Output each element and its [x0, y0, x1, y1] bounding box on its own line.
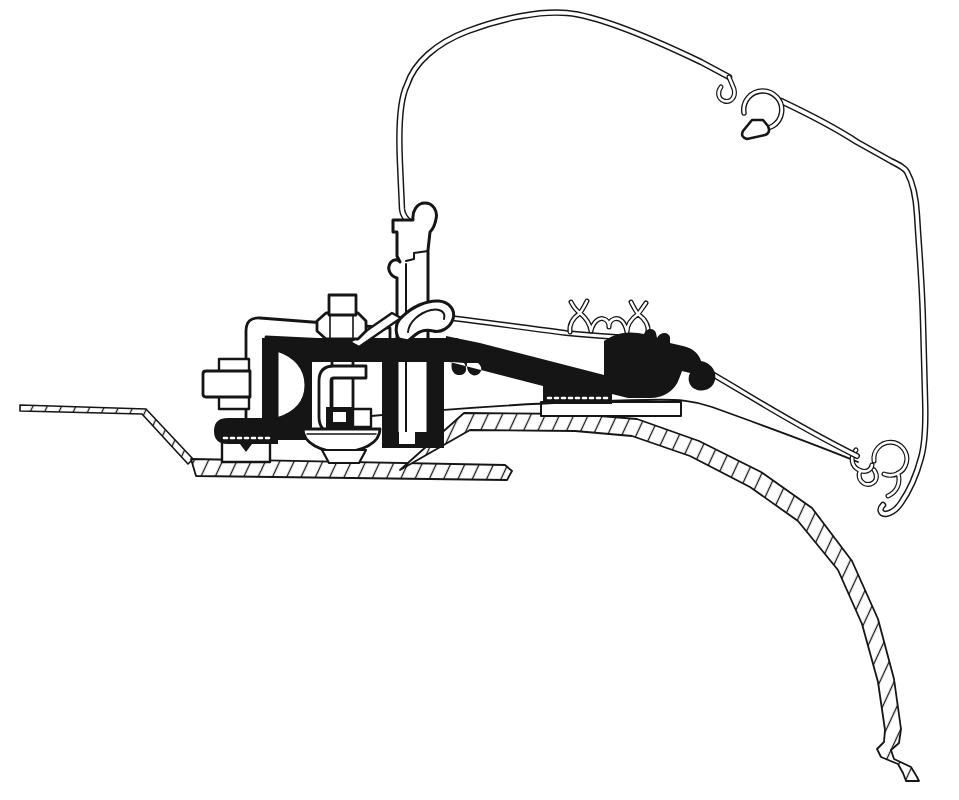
side-bolt-head	[203, 371, 250, 397]
diagram-page	[0, 0, 959, 800]
center-bolt-head	[329, 295, 356, 315]
adapter-channel-notch	[399, 432, 415, 444]
roof-sheet-left-thin	[20, 405, 193, 464]
roof-mounting-plate	[541, 402, 681, 416]
case-top-clip-foot	[742, 120, 769, 139]
rod-end-core	[332, 411, 347, 423]
rod-side-block	[353, 409, 371, 427]
rail-crown-profile	[570, 301, 648, 333]
rail-end-clip	[852, 442, 907, 496]
awning-adapter-diagram	[0, 0, 959, 800]
pressure-dish	[303, 429, 380, 452]
center-bolt-nut	[317, 313, 366, 339]
pressure-pad	[322, 450, 366, 463]
